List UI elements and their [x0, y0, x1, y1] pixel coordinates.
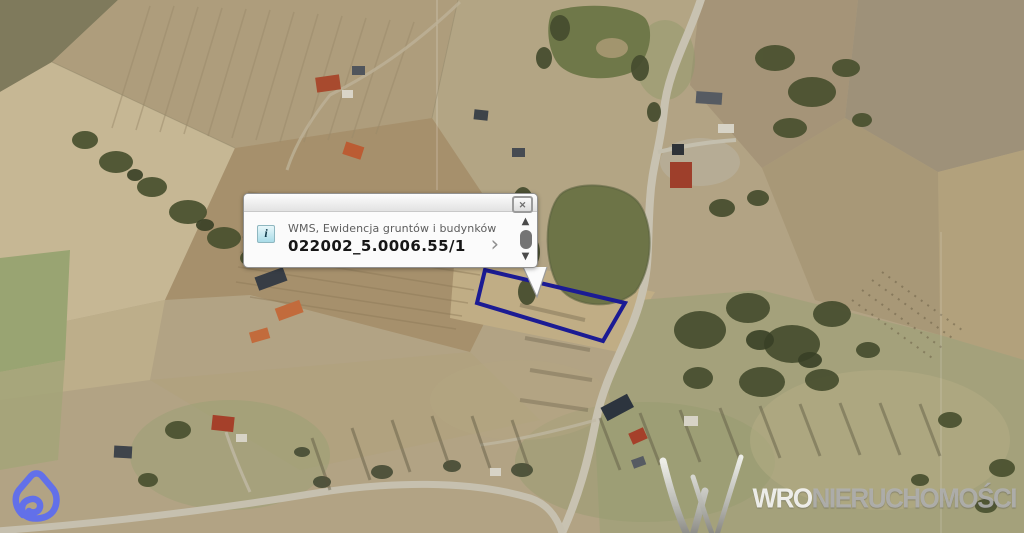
popup-texts: WMS, Ewidencja gruntów i budynków 022002… [288, 222, 496, 255]
wms-layer-label: WMS, Ewidencja gruntów i budynków [288, 222, 496, 235]
scroll-down-icon[interactable]: ▼ [522, 252, 530, 262]
scroll-up-icon[interactable]: ▲ [522, 217, 530, 227]
info-icon: i [257, 225, 275, 243]
scroll-thumb[interactable] [520, 230, 532, 249]
feature-info-popup: ✕ i WMS, Ewidencja gruntów i budynków 02… [243, 193, 538, 268]
chevron-right-icon[interactable]: › [491, 234, 499, 255]
popup-result-row[interactable]: i WMS, Ewidencja gruntów i budynków 0220… [244, 212, 537, 268]
map-viewport[interactable]: WRONIERUCHOMOŚCI ✕ i WMS, Ewidencja grun… [0, 0, 1024, 533]
popup-scrollbar[interactable]: ▲ ▼ [517, 217, 534, 262]
parcel-id: 022002_5.0006.55/1 [288, 237, 496, 255]
brand-house-loop-icon [8, 468, 64, 526]
popup-tail [516, 267, 554, 299]
close-icon[interactable]: ✕ [512, 196, 533, 213]
popup-header: ✕ [244, 194, 537, 212]
